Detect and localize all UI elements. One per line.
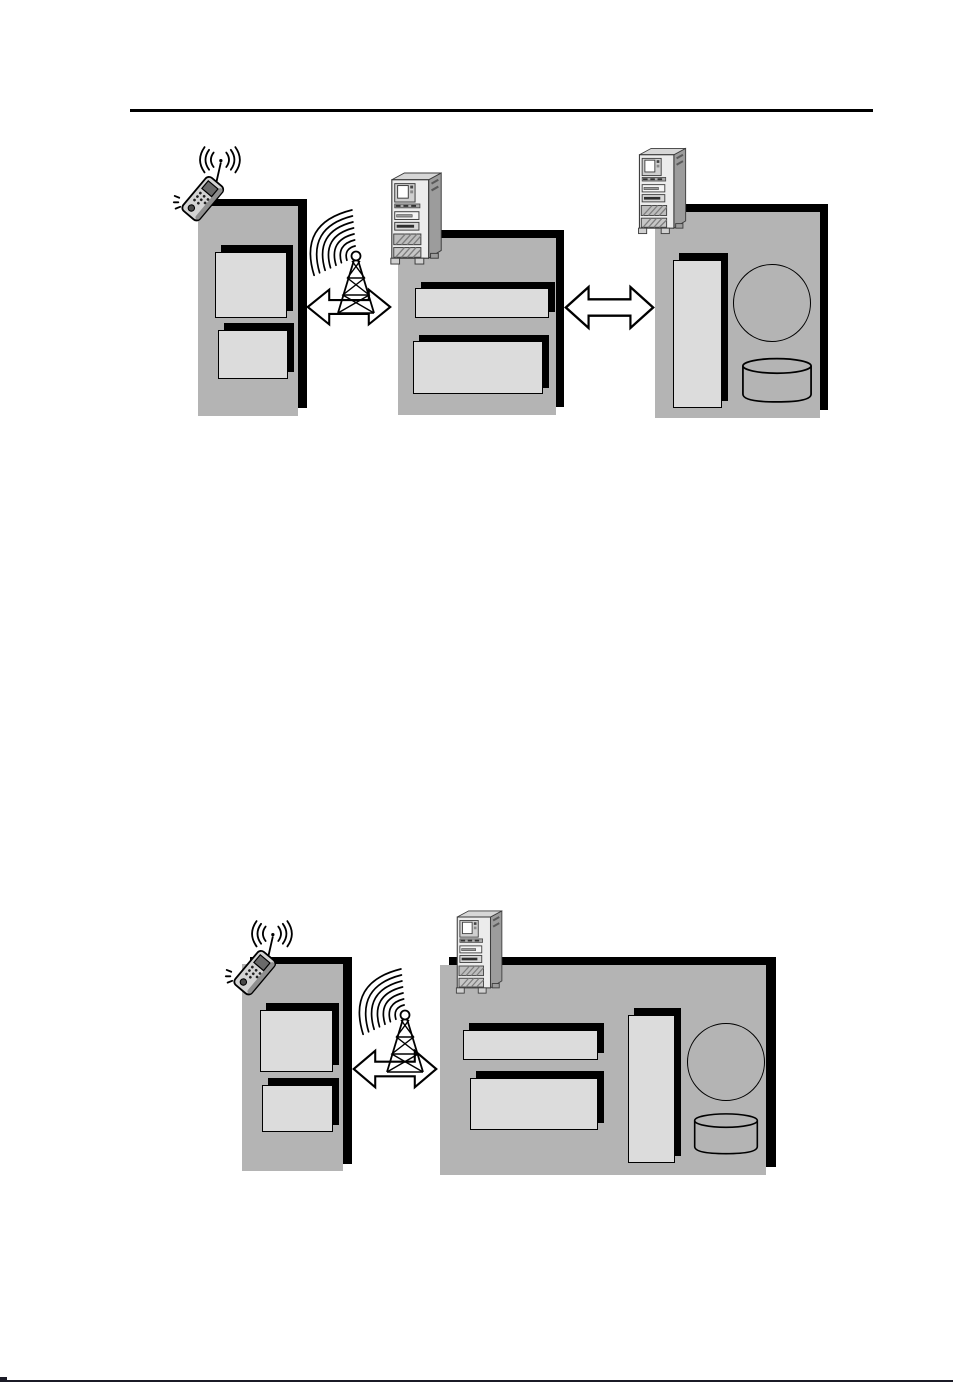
module-box (628, 1015, 675, 1163)
radio-tower-icon (329, 965, 444, 1077)
server-tower-icon (452, 908, 508, 996)
figure-bottom (0, 0, 953, 1384)
document-page (0, 0, 953, 1384)
module-box (470, 1078, 598, 1130)
signal-waves (359, 969, 404, 1034)
module-box (463, 1030, 598, 1060)
antenna (268, 936, 273, 956)
footer-rule (0, 1380, 953, 1382)
process-circle (687, 1023, 765, 1101)
module-box (260, 1010, 333, 1072)
phone-body (232, 949, 277, 996)
ring-dashes (226, 970, 232, 983)
tower-mast (387, 1019, 423, 1072)
page-edge-mark (0, 1377, 7, 1382)
mobile-phone-icon (224, 918, 300, 1002)
database-cylinder-icon (692, 1110, 760, 1158)
module-box (262, 1085, 333, 1132)
tower-beacon (401, 1011, 410, 1020)
